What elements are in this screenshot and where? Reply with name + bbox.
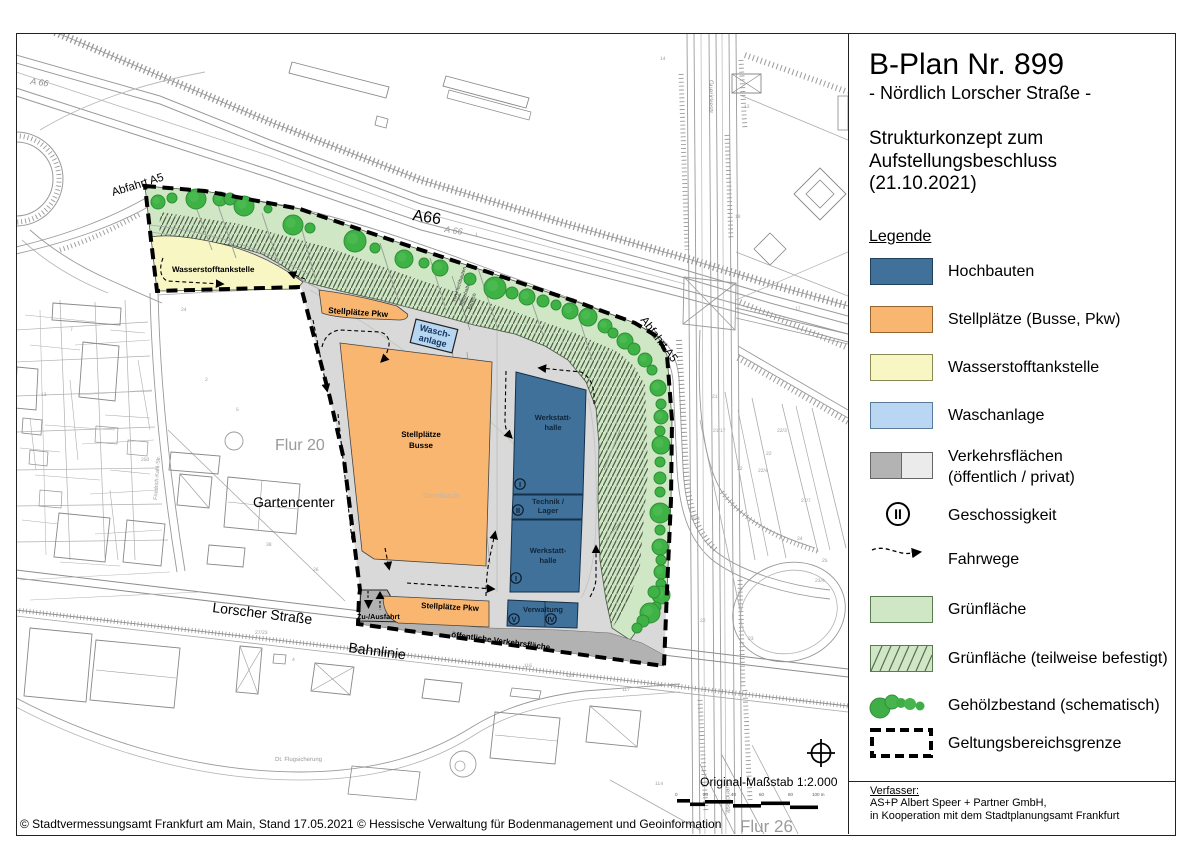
svg-text:II: II xyxy=(894,506,902,522)
